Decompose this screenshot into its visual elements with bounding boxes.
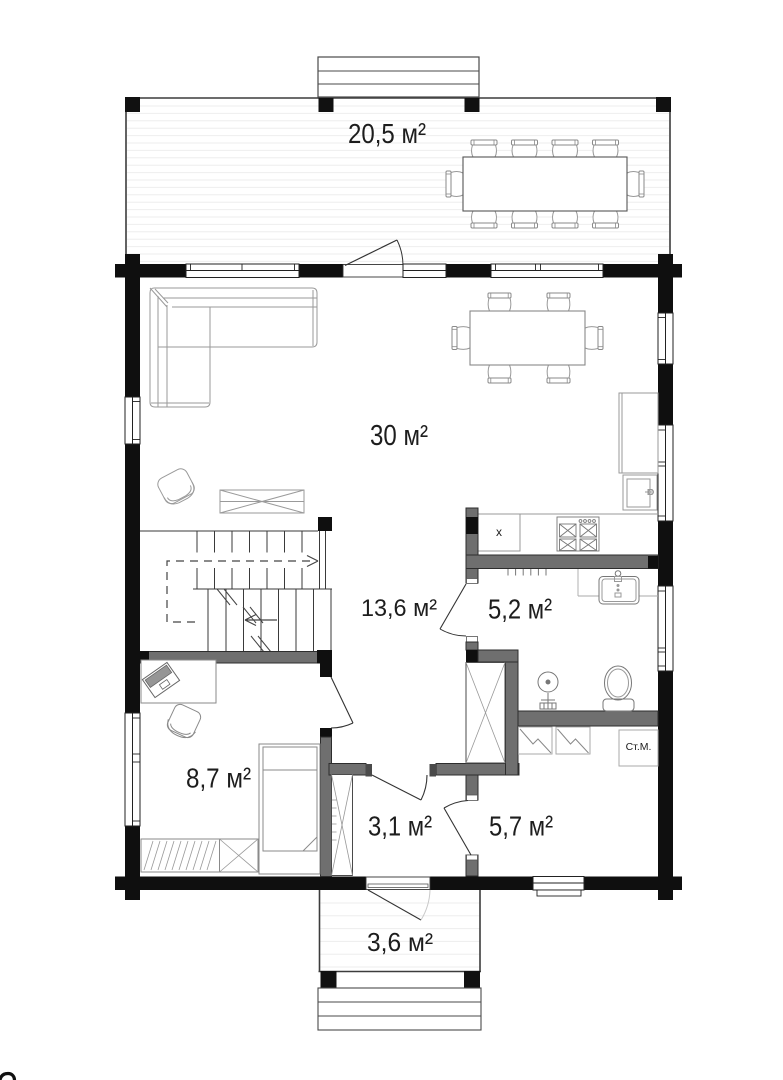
svg-text:x: x xyxy=(496,525,502,539)
svg-text:13,6 м²: 13,6 м² xyxy=(361,595,437,622)
svg-text:8,7 м²: 8,7 м² xyxy=(186,763,251,794)
svg-text:30 м²: 30 м² xyxy=(370,420,428,452)
svg-text:3,1 м²: 3,1 м² xyxy=(368,811,432,842)
svg-text:5,2 м²: 5,2 м² xyxy=(488,594,552,625)
svg-text:5,7 м²: 5,7 м² xyxy=(489,811,553,842)
svg-text:3,6 м²: 3,6 м² xyxy=(367,927,433,957)
svg-text:20,5 м²: 20,5 м² xyxy=(348,118,426,149)
svg-text:Ст.М.: Ст.М. xyxy=(626,741,652,753)
